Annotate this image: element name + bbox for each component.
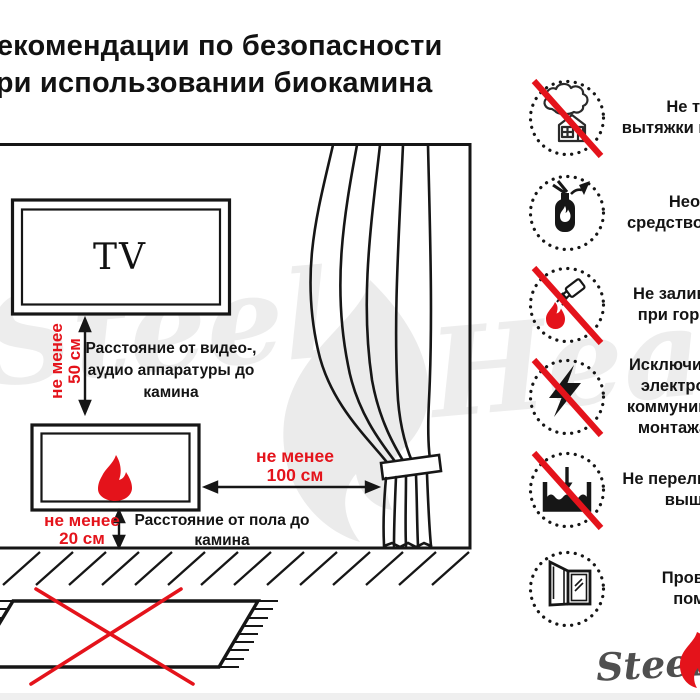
- floor-distance-label: не менее 20 см: [36, 512, 128, 547]
- tv-distance-line-1: не менее: [48, 313, 66, 409]
- curtain-distance-label: не менее 100 см: [215, 447, 375, 485]
- rule-text-4: Исключить прокладку электропроводки и ко…: [560, 355, 700, 439]
- rule-text-5: Не переливать топливо выше уровня: [560, 469, 700, 511]
- carpet: [0, 601, 278, 667]
- title-line-1: Рекомендации по безопасности: [0, 28, 443, 65]
- title-line-2: при использовании биокамина: [0, 65, 443, 102]
- tv-distance-label: не менее 50 см: [48, 313, 84, 409]
- infographic-canvas: Steel Heat Рекомендации по безопасности …: [0, 0, 700, 700]
- tv-distance-description: Расстояние от видео-, аудио аппаратуры д…: [81, 338, 261, 404]
- floor-hatching: [3, 552, 469, 585]
- rule-text-2: Необходимо средство для тушения: [560, 192, 700, 234]
- floor-distance-description: Расстояние от пола до камина: [132, 511, 312, 551]
- bottom-edge-strip: [0, 693, 700, 700]
- curtain-tie: [381, 455, 441, 479]
- page-title: Рекомендации по безопасности при использ…: [0, 28, 443, 102]
- rule-text-3: Не заливать топливо при горении камина: [560, 284, 700, 326]
- brand-flame-icon: [676, 632, 700, 692]
- rule-text-6: Проветривать помещение: [560, 568, 700, 610]
- tv-label: TV: [70, 237, 170, 278]
- rule-text-1: Не требуется вытяжки или дымохода: [560, 97, 700, 139]
